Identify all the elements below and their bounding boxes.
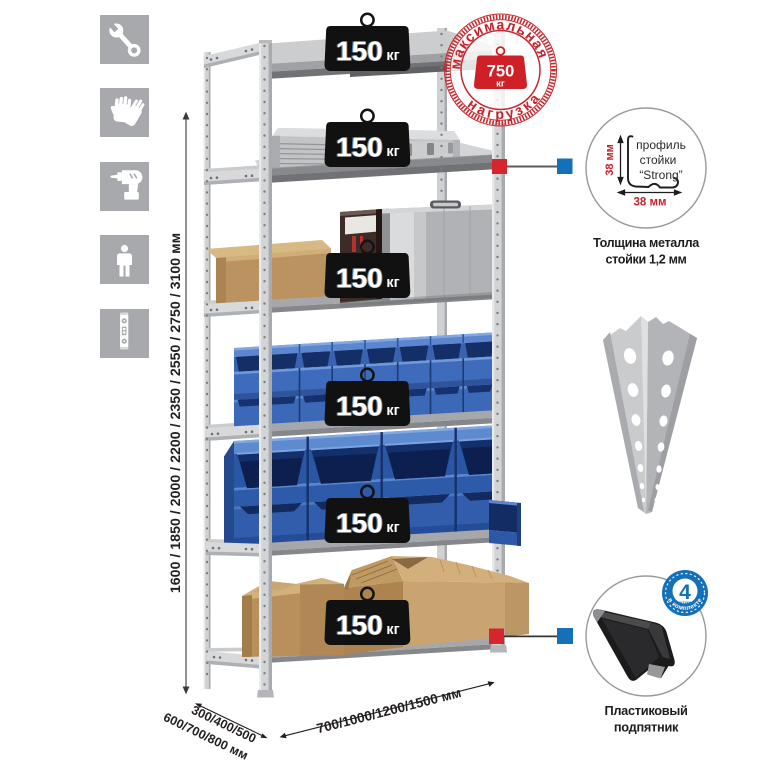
svg-text:подпятник: подпятник xyxy=(614,720,679,735)
svg-text:1600 / 1850 / 2000 / 2200 / 23: 1600 / 1850 / 2000 / 2200 / 2350 / 2550 … xyxy=(168,233,184,593)
svg-text:кг: кг xyxy=(496,79,505,90)
svg-text:штуки: штуки xyxy=(679,600,692,605)
svg-text:стойки 1,2 мм: стойки 1,2 мм xyxy=(605,253,686,267)
svg-text:38 мм: 38 мм xyxy=(604,144,616,176)
svg-text:Толщина металла: Толщина металла xyxy=(593,236,700,250)
svg-text:профиль: профиль xyxy=(636,138,686,152)
svg-text:стойки: стойки xyxy=(640,153,677,167)
svg-text:“Strong”: “Strong” xyxy=(639,168,682,182)
svg-text:Пластиковый: Пластиковый xyxy=(604,703,687,718)
svg-text:38 мм: 38 мм xyxy=(633,197,666,209)
